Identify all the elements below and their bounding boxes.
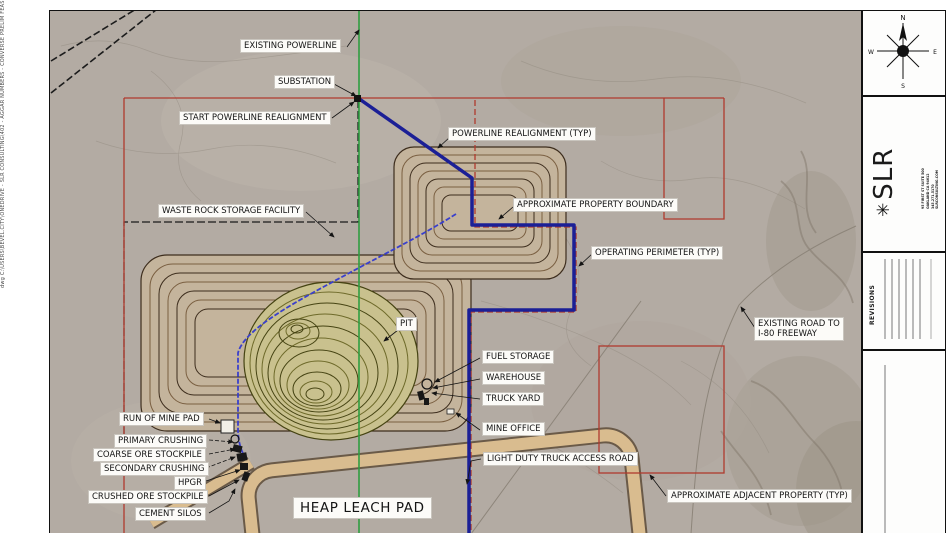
label-approximate-property-boundary: APPROXIMATE PROPERTY BOUNDARY xyxy=(513,198,678,212)
revisions-box: REVISIONS xyxy=(862,252,946,350)
site-plan-map: EXISTING POWERLINE SUBSTATION START POWE… xyxy=(49,10,862,533)
title-block: N E S W ✳ SLR 95 FIRST ST SUITE 500 OAKL… xyxy=(862,10,946,533)
label-mine-office: MINE OFFICE xyxy=(482,422,545,436)
label-hpgr: HPGR xyxy=(174,476,206,490)
label-secondary-crushing: SECONDARY CRUSHING xyxy=(100,462,209,476)
label-run-of-mine-pad: RUN OF MINE PAD xyxy=(119,412,204,426)
label-heap-leach-pad: HEAP LEACH PAD xyxy=(293,497,432,519)
label-fuel-storage: FUEL STORAGE xyxy=(482,350,554,364)
plot-stamp-text: dwg C:\USERS\BEVEL.CITY\ONEDRIVE - SLR C… xyxy=(0,0,6,288)
svg-text:E: E xyxy=(933,49,937,56)
north-arrow-box: N E S W xyxy=(862,10,946,96)
label-existing-powerline: EXISTING POWERLINE xyxy=(240,39,341,53)
label-primary-crushing: PRIMARY CRUSHING xyxy=(114,434,207,448)
label-coarse-ore-stockpile: COARSE ORE STOCKPILE xyxy=(93,448,206,462)
existing-powerline-corridor xyxy=(51,11,161,93)
label-operating-perimeter: OPERATING PERIMETER (TYP) xyxy=(591,246,723,260)
pit-contours xyxy=(244,282,418,440)
company-logo-box: ✳ SLR 95 FIRST ST SUITE 500 OAKLAND CA 9… xyxy=(862,96,946,252)
svg-text:W: W xyxy=(868,49,874,56)
label-light-duty-truck-access-road: LIGHT DUTY TRUCK ACCESS ROAD xyxy=(483,452,638,466)
run-of-mine-pad-symbol xyxy=(221,420,234,433)
north-arrow-icon: N E S W xyxy=(863,11,943,91)
label-pit: PIT xyxy=(396,317,417,331)
slr-logo-icon: ✳ xyxy=(874,203,894,217)
label-warehouse: WAREHOUSE xyxy=(482,371,545,385)
svg-text:N: N xyxy=(900,14,905,22)
slr-logo-text: SLR xyxy=(869,148,899,200)
lower-box-lines xyxy=(863,351,943,533)
company-address: 95 FIRST ST SUITE 500 OAKLAND CA 94612 3… xyxy=(921,137,940,209)
label-powerline-realignment: POWERLINE REALIGNMENT (TYP) xyxy=(448,127,596,141)
label-waste-rock-storage-facility: WASTE ROCK STORAGE FACILITY xyxy=(158,204,304,218)
label-substation: SUBSTATION xyxy=(274,75,335,89)
plot-stamp: dwg C:\USERS\BEVEL.CITY\ONEDRIVE - SLR C… xyxy=(0,0,12,300)
label-truck-yard: TRUCK YARD xyxy=(482,392,544,406)
mine-office-symbol xyxy=(447,409,454,414)
sheet-page: dwg C:\USERS\BEVEL.CITY\ONEDRIVE - SLR C… xyxy=(0,0,950,533)
revisions-label: REVISIONS xyxy=(869,285,876,325)
substation-symbol xyxy=(354,95,361,102)
label-crushed-ore-stockpile: CRUSHED ORE STOCKPILE xyxy=(88,490,208,504)
title-block-lower xyxy=(862,350,946,533)
label-cement-silos: CEMENT SILOS xyxy=(135,507,206,521)
label-existing-road-i80: EXISTING ROAD TO I-80 FREEWAY xyxy=(754,317,844,341)
label-start-powerline-realignment: START POWERLINE REALIGNMENT xyxy=(179,111,331,125)
svg-text:S: S xyxy=(901,83,905,90)
label-approximate-adjacent-property: APPROXIMATE ADJACENT PROPERTY (TYP) xyxy=(667,489,852,503)
